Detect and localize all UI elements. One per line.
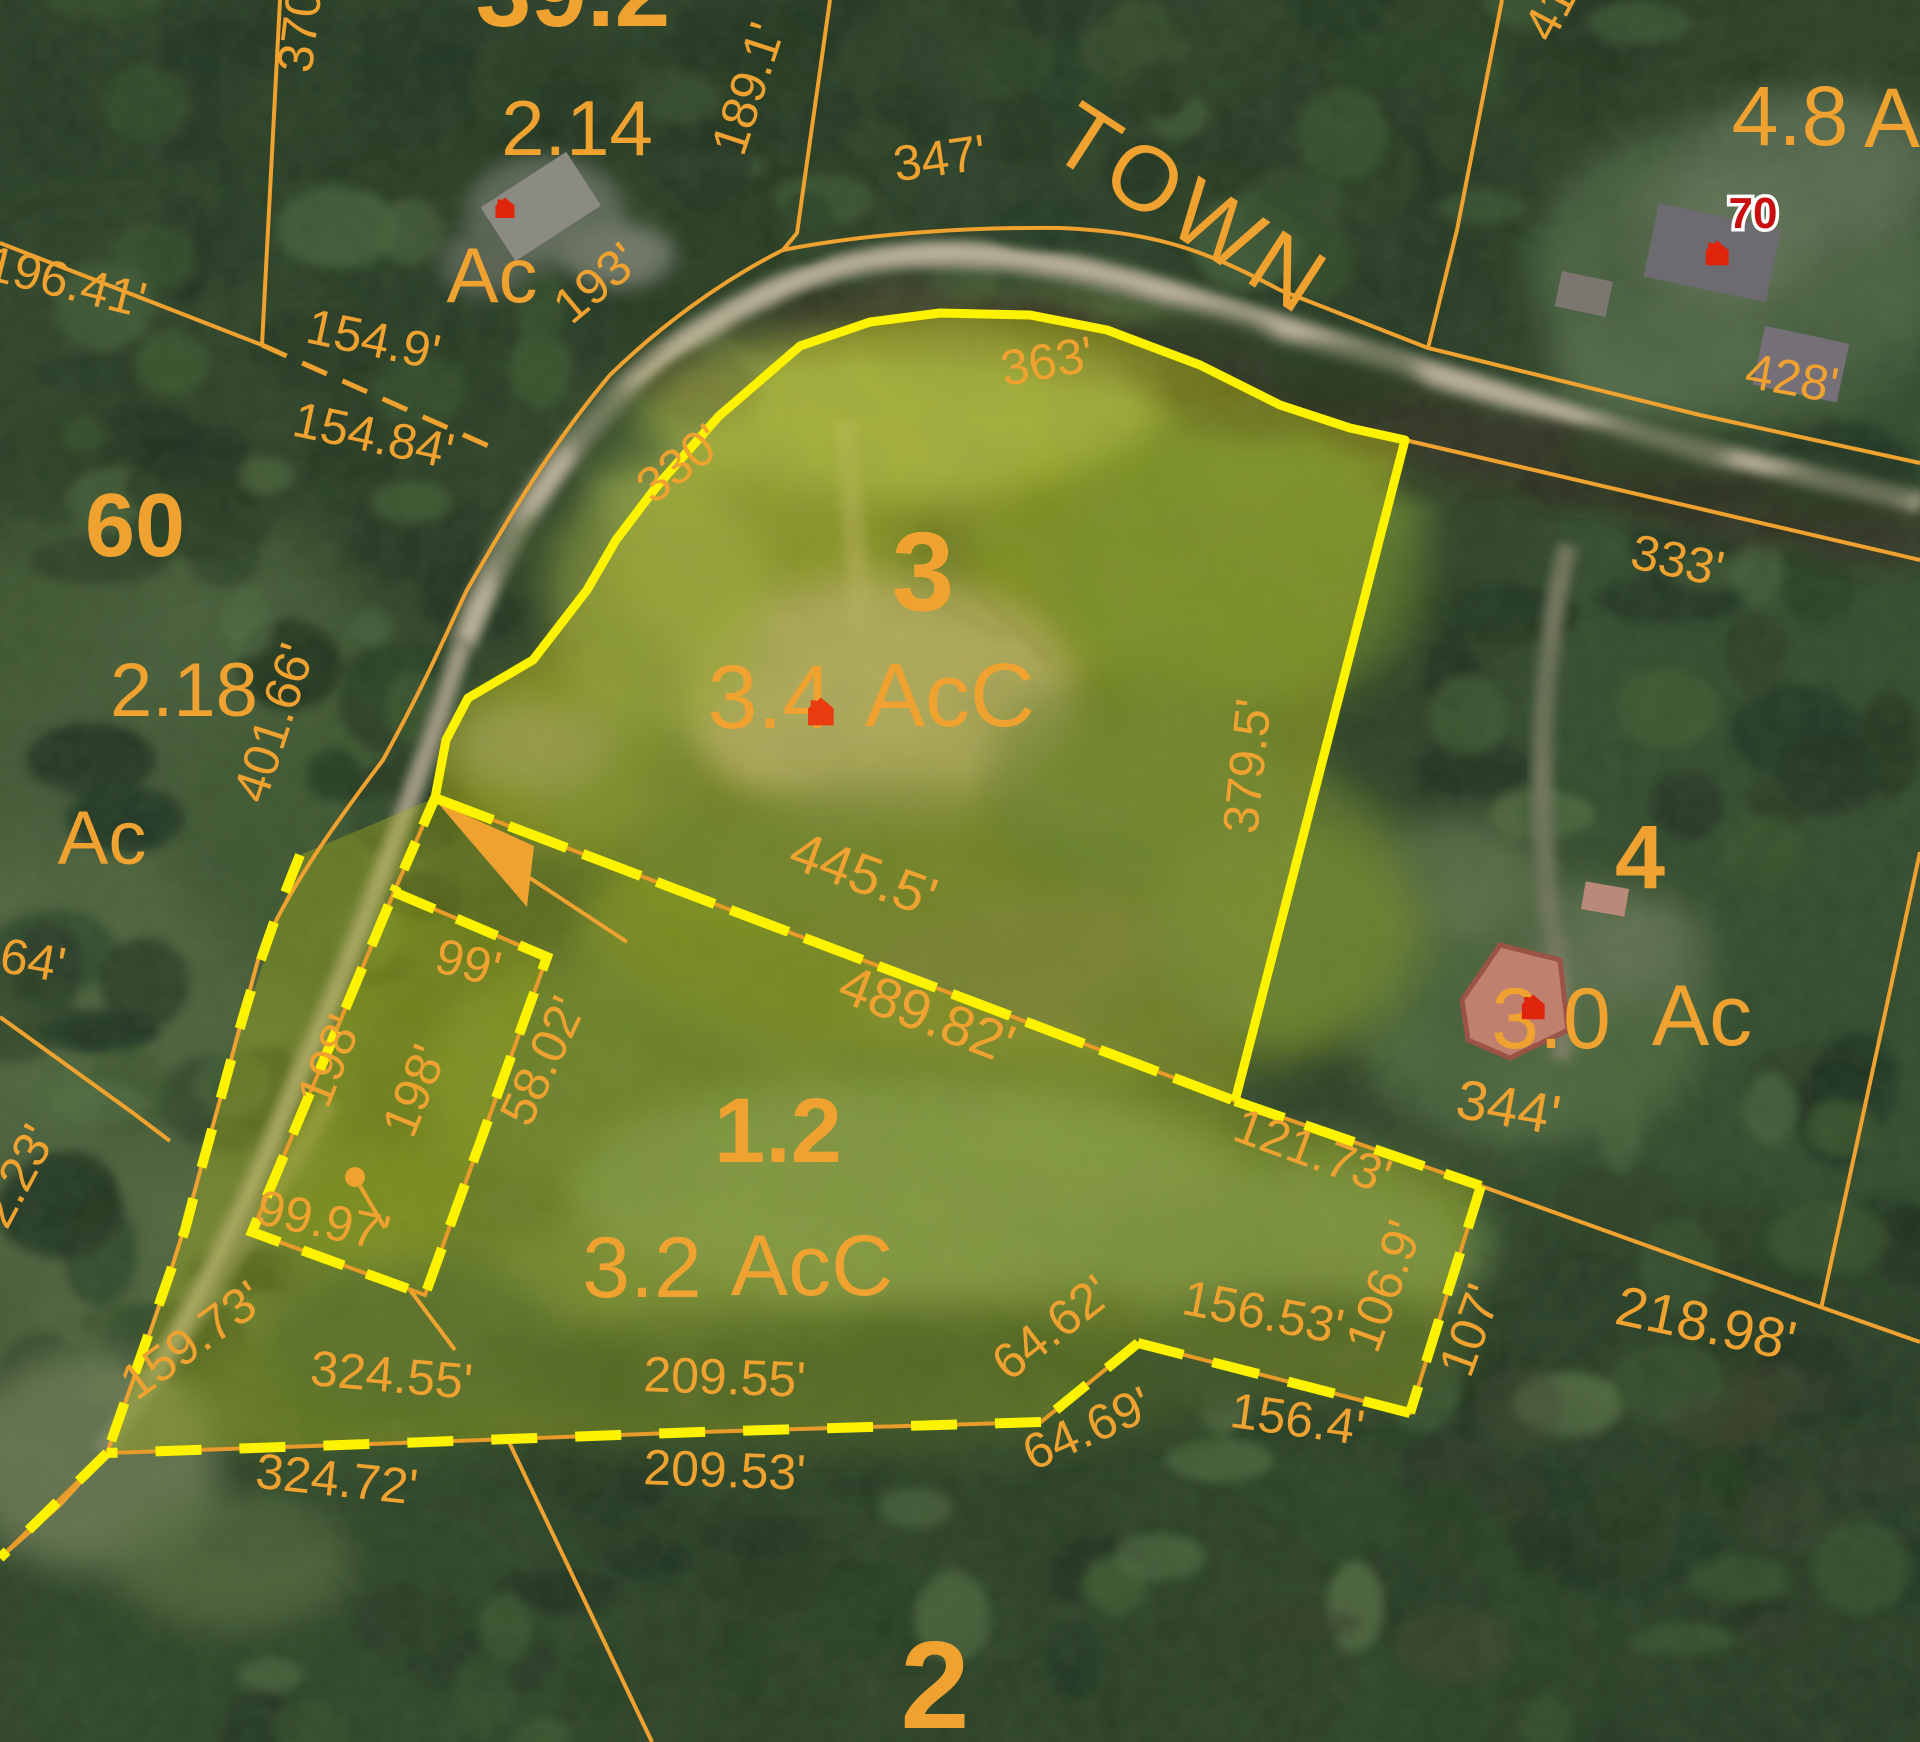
- svg-text:3.4: 3.4: [707, 648, 832, 748]
- svg-text:2.18: 2.18: [110, 648, 258, 733]
- svg-text:3: 3: [892, 509, 954, 634]
- svg-text:370': 370': [267, 0, 334, 75]
- svg-text:3.0: 3.0: [1491, 971, 1611, 1067]
- svg-text:60: 60: [85, 476, 185, 576]
- svg-text:4.8: 4.8: [1732, 69, 1849, 163]
- svg-text:Ac: Ac: [1864, 71, 1920, 165]
- svg-text:39.2: 39.2: [476, 0, 671, 48]
- svg-text:2: 2: [901, 1617, 970, 1742]
- svg-text:2.14: 2.14: [501, 84, 653, 172]
- svg-text:209.55': 209.55': [642, 1346, 806, 1408]
- svg-text:70: 70: [1729, 189, 1778, 238]
- svg-text:1.2: 1.2: [714, 1080, 842, 1182]
- svg-text:AcC: AcC: [865, 646, 1035, 746]
- svg-text:Ac: Ac: [446, 231, 537, 319]
- svg-text:Ac: Ac: [1652, 968, 1752, 1064]
- svg-text:209.53': 209.53': [642, 1439, 806, 1501]
- svg-text:3.2: 3.2: [582, 1220, 702, 1316]
- svg-text:Ac: Ac: [58, 796, 147, 881]
- svg-text:AcC: AcC: [731, 1218, 893, 1314]
- svg-text:64': 64': [0, 927, 70, 993]
- svg-text:4: 4: [1615, 808, 1665, 908]
